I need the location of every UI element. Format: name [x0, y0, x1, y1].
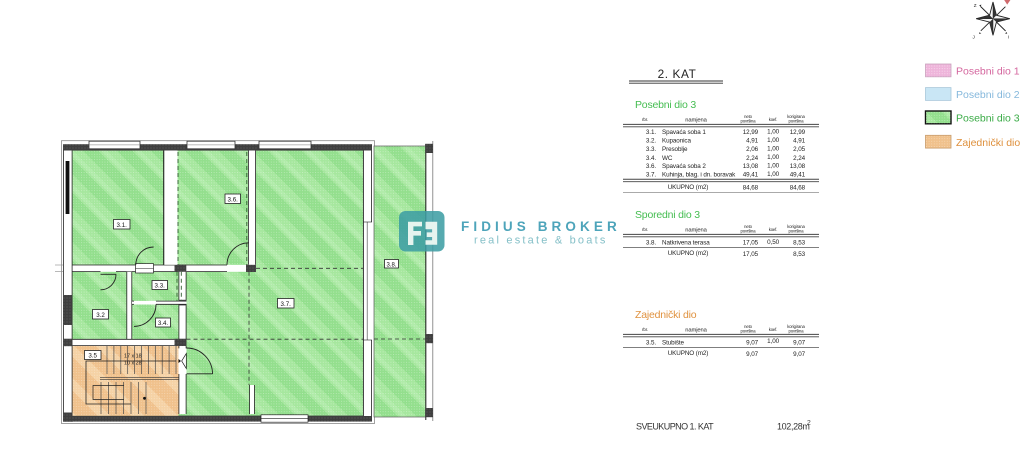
- svg-text:12,99: 12,99: [743, 129, 759, 136]
- svg-text:1,00: 1,00: [767, 163, 779, 170]
- svg-text:1,00: 1,00: [767, 129, 779, 136]
- svg-text:3.2.: 3.2.: [646, 138, 656, 145]
- svg-text:namjena: namjena: [685, 118, 707, 124]
- svg-text:10 x 28: 10 x 28: [124, 361, 142, 367]
- svg-text:49,41: 49,41: [743, 172, 759, 179]
- svg-text:Presoblje: Presoblje: [662, 146, 688, 153]
- svg-text:2. KAT: 2. KAT: [658, 67, 697, 81]
- svg-text:3.7.: 3.7.: [281, 301, 292, 308]
- svg-text:UKUPNO (m2): UKUPNO (m2): [668, 350, 709, 357]
- svg-text:rbr.: rbr.: [642, 327, 648, 332]
- svg-text:Posebni dio 3: Posebni dio 3: [635, 99, 696, 111]
- svg-text:FIDIUS BROKER: FIDIUS BROKER: [461, 219, 621, 234]
- svg-text:9,07: 9,07: [746, 339, 758, 346]
- svg-text:I: I: [1008, 35, 1009, 40]
- svg-text:17,05: 17,05: [743, 251, 759, 258]
- svg-text:102,28m: 102,28m: [777, 422, 810, 432]
- svg-text:8,53: 8,53: [793, 251, 805, 258]
- svg-text:3.8.: 3.8.: [386, 262, 396, 268]
- svg-text:površina: površina: [740, 329, 756, 334]
- svg-text:1,00: 1,00: [767, 171, 779, 178]
- svg-text:1,00: 1,00: [767, 154, 779, 161]
- svg-text:Zajednički dio: Zajednički dio: [635, 309, 697, 321]
- svg-text:17,05: 17,05: [743, 239, 759, 246]
- svg-text:9,07: 9,07: [746, 351, 758, 358]
- svg-text:koef.: koef.: [769, 327, 778, 332]
- svg-text:2,06: 2,06: [746, 146, 758, 153]
- svg-text:3.5.: 3.5.: [646, 339, 656, 346]
- svg-text:84,68: 84,68: [790, 184, 806, 191]
- svg-text:rbr.: rbr.: [642, 117, 648, 122]
- svg-text:J: J: [973, 35, 975, 40]
- svg-text:Kupaonica: Kupaonica: [662, 138, 691, 145]
- svg-text:Zajednički dio: Zajednički dio: [956, 137, 1020, 149]
- svg-text:8,53: 8,53: [793, 239, 805, 246]
- svg-text:2,24: 2,24: [793, 155, 805, 162]
- svg-text:3.3.: 3.3.: [155, 283, 166, 290]
- svg-text:0,50: 0,50: [767, 239, 779, 246]
- svg-text:Stubište: Stubište: [662, 339, 685, 346]
- svg-text:Kuhinja, blag. i dn. boravak: Kuhinja, blag. i dn. boravak: [662, 172, 736, 179]
- svg-text:Posebni dio 3: Posebni dio 3: [956, 113, 1020, 125]
- svg-text:površina: površina: [788, 229, 804, 234]
- svg-text:namjena: namjena: [685, 228, 707, 234]
- svg-text:namjena: namjena: [685, 328, 707, 334]
- svg-text:SVEUKUPNO 1. KAT: SVEUKUPNO 1. KAT: [636, 422, 714, 432]
- svg-text:3.3.: 3.3.: [646, 146, 656, 153]
- svg-text:3.5: 3.5: [88, 353, 97, 360]
- svg-text:3.4.: 3.4.: [646, 155, 656, 162]
- svg-text:Posebni dio 1: Posebni dio 1: [956, 66, 1020, 78]
- svg-text:3.4.: 3.4.: [158, 320, 169, 327]
- svg-text:Spavaća soba 1: Spavaća soba 1: [662, 129, 706, 136]
- svg-text:3.1.: 3.1.: [117, 222, 128, 229]
- svg-text:12,99: 12,99: [790, 129, 806, 136]
- svg-text:Spavaća soba 2: Spavaća soba 2: [662, 163, 706, 170]
- svg-text:Natkrivena terasa: Natkrivena terasa: [662, 239, 710, 246]
- svg-text:17 x 18: 17 x 18: [124, 354, 142, 360]
- svg-text:1,00: 1,00: [767, 146, 779, 153]
- svg-text:49,41: 49,41: [790, 172, 806, 179]
- svg-text:Sporedni dio 3: Sporedni dio 3: [635, 209, 700, 221]
- svg-text:Posebni dio 2: Posebni dio 2: [956, 89, 1020, 101]
- svg-text:9,07: 9,07: [793, 339, 805, 346]
- svg-text:9,07: 9,07: [793, 351, 805, 358]
- svg-text:rbr.: rbr.: [642, 227, 648, 232]
- svg-text:1,00: 1,00: [767, 338, 779, 345]
- svg-text:13,08: 13,08: [790, 163, 806, 170]
- svg-text:4,91: 4,91: [746, 138, 758, 145]
- svg-text:84,68: 84,68: [743, 184, 759, 191]
- svg-text:UKUPNO (m2): UKUPNO (m2): [668, 250, 709, 257]
- svg-text:Z: Z: [974, 3, 977, 8]
- svg-text:površina: površina: [788, 329, 804, 334]
- svg-text:3.2: 3.2: [96, 312, 105, 319]
- svg-text:koef.: koef.: [769, 117, 778, 122]
- svg-text:1,00: 1,00: [767, 137, 779, 144]
- svg-text:površina: površina: [740, 119, 756, 124]
- svg-text:real estate & boats: real estate & boats: [474, 235, 608, 247]
- svg-text:2,24: 2,24: [746, 155, 758, 162]
- svg-text:2: 2: [807, 420, 811, 427]
- svg-text:površina: površina: [740, 229, 756, 234]
- svg-text:3.1.: 3.1.: [646, 129, 656, 136]
- svg-text:3.6.: 3.6.: [228, 196, 239, 203]
- svg-text:UKUPNO (m2): UKUPNO (m2): [668, 184, 709, 191]
- svg-text:3.7.: 3.7.: [646, 172, 656, 179]
- svg-text:4,91: 4,91: [793, 138, 805, 145]
- svg-text:koef.: koef.: [769, 227, 778, 232]
- svg-text:2,05: 2,05: [793, 146, 805, 153]
- svg-text:WC: WC: [662, 155, 673, 162]
- svg-text:13,08: 13,08: [743, 163, 759, 170]
- svg-text:površina: površina: [788, 119, 804, 124]
- svg-text:3.8.: 3.8.: [646, 239, 656, 246]
- svg-text:3.6.: 3.6.: [646, 163, 656, 170]
